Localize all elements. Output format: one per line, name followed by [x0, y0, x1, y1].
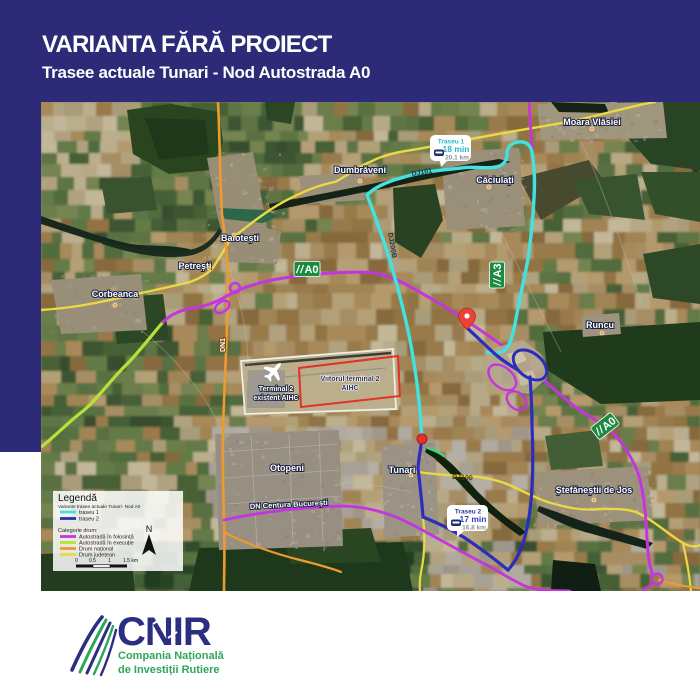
svg-text:DN1: DN1 [220, 338, 227, 352]
svg-text:Moara Vlăsiei: Moara Vlăsiei [563, 117, 621, 127]
svg-text:1: 1 [108, 558, 111, 564]
svg-text:Variante trasee actuale Tunari: Variante trasee actuale Tunari- Nod A0 [58, 504, 141, 510]
svg-text:Căciulați: Căciulați [476, 175, 514, 185]
svg-text:Terminal 2: Terminal 2 [259, 386, 294, 393]
svg-text:Legendă: Legendă [58, 493, 97, 504]
svg-text:1.5 km: 1.5 km [123, 558, 138, 564]
svg-text:Viitorul terminal 2: Viitorul terminal 2 [321, 376, 380, 383]
svg-text:Compania Națională: Compania Națională [118, 650, 225, 662]
svg-text:Balotești: Balotești [221, 233, 259, 243]
svg-text:0.5: 0.5 [89, 558, 96, 564]
svg-text:17 min: 17 min [460, 514, 487, 524]
svg-text:Corbeanca: Corbeanca [92, 289, 140, 299]
svg-text:Ștefăneștii de Jos: Ștefăneștii de Jos [556, 485, 633, 495]
svg-text:DJ100: DJ100 [452, 474, 473, 482]
svg-text:18 min: 18 min [443, 144, 470, 154]
svg-text:A0: A0 [304, 264, 318, 276]
svg-text:de Investiții Rutiere: de Investiții Rutiere [118, 664, 219, 676]
svg-text:Categorie drum:: Categorie drum: [58, 528, 98, 534]
svg-text:traseu 2: traseu 2 [79, 517, 99, 523]
svg-text:A3: A3 [492, 263, 504, 277]
svg-text:AIHC: AIHC [341, 385, 358, 392]
svg-text:0: 0 [75, 558, 78, 564]
svg-text:Dumbrăveni: Dumbrăveni [334, 165, 386, 175]
svg-text:existent AIHC: existent AIHC [253, 395, 298, 402]
svg-text:20,1 km: 20,1 km [445, 155, 469, 162]
svg-text:Runcu: Runcu [586, 320, 614, 330]
svg-text:CNIR: CNIR [117, 610, 212, 654]
svg-text:16,8 km: 16,8 km [462, 525, 486, 532]
svg-text:Otopeni: Otopeni [270, 463, 304, 473]
svg-text:Petrești: Petrești [178, 261, 211, 271]
svg-text:traseu 1: traseu 1 [79, 510, 99, 516]
svg-text:N: N [146, 524, 153, 534]
